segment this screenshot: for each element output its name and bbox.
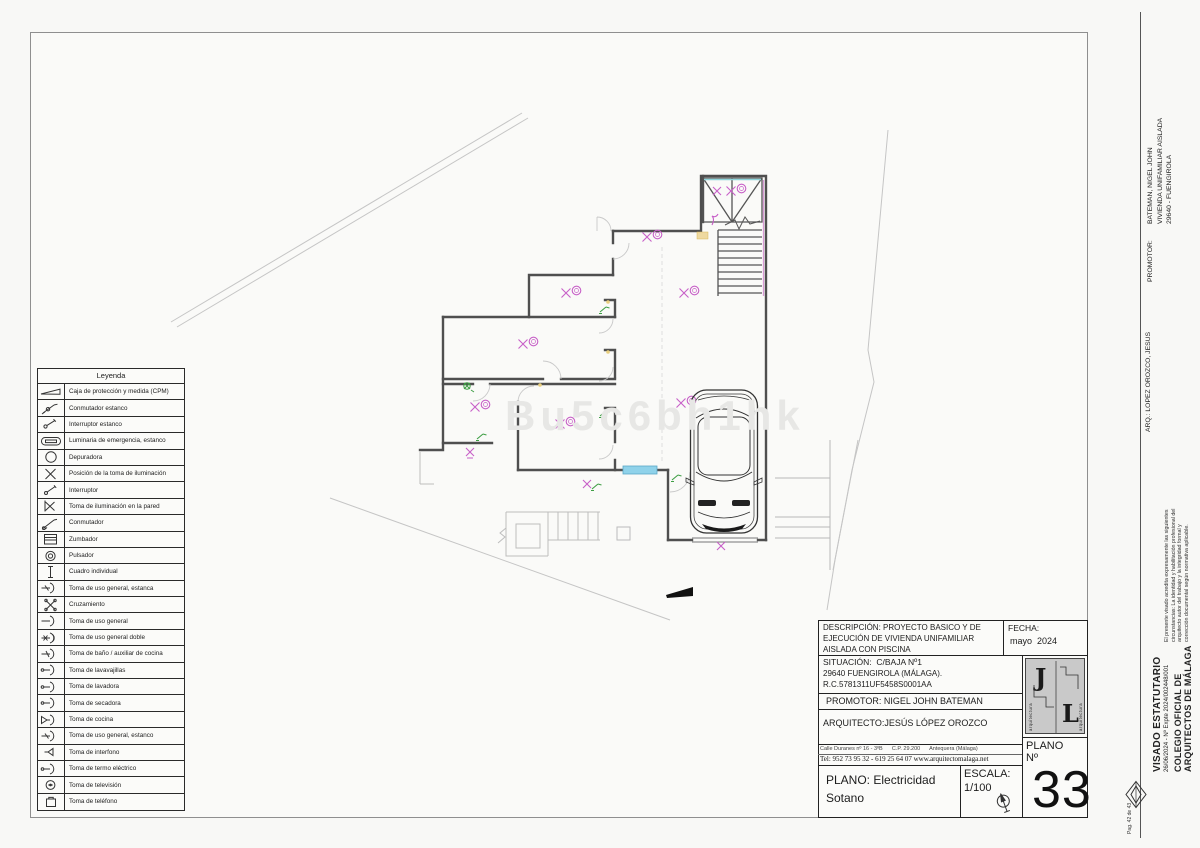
luminaria-emergencia-icon xyxy=(38,433,65,448)
toma-television-icon xyxy=(38,777,65,792)
window-marker xyxy=(623,466,657,474)
watermark: Bu5c6bh1hk xyxy=(505,392,805,440)
legend-row: Zumbador xyxy=(38,532,184,548)
sidebar-divider xyxy=(1140,12,1141,838)
legend-row: Toma de uso general xyxy=(38,613,184,629)
legend-row: Caja de protección y medida (CPM) xyxy=(38,384,184,400)
toma-lavavajillas-icon xyxy=(38,663,65,678)
floor-plan-walls xyxy=(420,176,766,540)
staircase xyxy=(703,178,762,296)
legend-row: Toma de interfono xyxy=(38,745,184,761)
plano-title: PLANO: Electricidad xyxy=(826,773,935,787)
legend-row: Toma de secadora xyxy=(38,695,184,711)
toma-bano-icon xyxy=(38,646,65,661)
legend-row: Toma de termo eléctrico xyxy=(38,761,184,777)
conmutador-estanco-icon xyxy=(38,400,65,415)
legend-item-label: Toma de interfono xyxy=(65,745,184,760)
toma-termo-icon xyxy=(38,761,65,776)
legend-row: Cruzamiento xyxy=(38,597,184,613)
utility-square xyxy=(617,527,630,540)
legend-item-label: Interruptor estanco xyxy=(65,417,184,432)
legend-row: Interruptor xyxy=(38,482,184,498)
sidebar-architect-line: ARQ.: LOPEZ OROZCO, JESUS xyxy=(1144,332,1154,432)
descripcion-line2: EJECUCIÓN DE VIVIENDA UNIFAMILIAR xyxy=(823,634,974,643)
toma-uso-general-estanco-icon xyxy=(38,581,65,596)
legend-item-label: Toma de cocina xyxy=(65,712,184,727)
legend-row: Toma de lavadora xyxy=(38,679,184,695)
plano-title2: Sotano xyxy=(826,791,864,805)
legend-row: Toma de lavavajillas xyxy=(38,663,184,679)
legend-row: Toma de teléfono xyxy=(38,794,184,810)
toma-iluminacion-icon xyxy=(38,466,65,481)
situacion-line2: 29640 FUENGIROLA (MÁLAGA). xyxy=(823,669,942,678)
visado-note: El presente visado acredita expresamente… xyxy=(1164,500,1190,642)
toma-interfono-icon xyxy=(38,745,65,760)
legend-item-label: Depuradora xyxy=(65,450,184,465)
cpm-symbol xyxy=(666,587,693,598)
toma-uso-general-estanco2-icon xyxy=(38,728,65,743)
legend-row: Interruptor estanco xyxy=(38,417,184,433)
toma-uso-general-icon xyxy=(38,613,65,628)
legend-item-label: Zumbador xyxy=(65,532,184,547)
interruptor-estanco-icon xyxy=(38,417,65,432)
legend-item-label: Toma de iluminación en la pared xyxy=(65,499,184,514)
legend-item-label: Toma de uso general xyxy=(65,613,184,628)
legend-item-label: Luminaria de emergencia, estanco xyxy=(65,433,184,448)
legend-row: Toma de uso general, estanco xyxy=(38,728,184,744)
door-arcs xyxy=(473,217,690,492)
toma-lavadora-icon xyxy=(38,679,65,694)
logo-step-lines xyxy=(1026,659,1086,735)
legend-item-label: Conmutador estanco xyxy=(65,400,184,415)
sidebar-promotor-label: PROMOTOR: xyxy=(1146,224,1156,282)
legend-row: Conmutador xyxy=(38,515,184,531)
toma-telefono-icon xyxy=(38,794,65,810)
sidebar-promotor-line3: 29640 - FUENGIROLA xyxy=(1165,155,1175,224)
legend-item-label: Toma de lavadora xyxy=(65,679,184,694)
address-line1: Calle Duranes nº 16 - 3ºB C.P. 29.200 An… xyxy=(820,746,978,752)
escala-label: ESCALA: xyxy=(964,768,1010,780)
escala-value: 1/100 xyxy=(964,782,992,794)
legend-item-label: Posición de la toma de iluminación xyxy=(65,466,184,481)
legend-item-label: Toma de teléfono xyxy=(65,794,184,810)
legend-title: Leyenda xyxy=(38,369,184,384)
arquitecto-line: ARQUITECTO:JESÚS LÓPEZ OROZCO xyxy=(823,718,987,728)
legend-row: Conmutador estanco xyxy=(38,400,184,416)
page-note: Pag. 42 de 43 xyxy=(1127,803,1133,834)
legend-row: Posición de la toma de iluminación xyxy=(38,466,184,482)
cpm-wedge-icon xyxy=(38,384,65,399)
cruzamiento-icon xyxy=(38,597,65,612)
toma-secadora-icon xyxy=(38,695,65,710)
legend-item-label: Toma de termo eléctrico xyxy=(65,761,184,776)
legend-item-label: Toma de televisión xyxy=(65,777,184,792)
legend-row: Luminaria de emergencia, estanco xyxy=(38,433,184,449)
legend-item-label: Cuadro individual xyxy=(65,564,184,579)
legend-item-label: Toma de uso general, estanco xyxy=(65,728,184,743)
address-line2: Tel: 952 73 95 32 - 619 25 64 07 www.arq… xyxy=(820,755,989,763)
situacion-line1: SITUACIÓN: C/BAJA Nº1 xyxy=(823,657,922,667)
sidebar-promotor-block: PROMOTOR: BATEMAN, NIGEL JOHN VIVIENDA U… xyxy=(1146,118,1175,282)
legend-item-label: Toma de uso general, estanca xyxy=(65,581,184,596)
zumbador-icon xyxy=(38,532,65,547)
north-arrow-icon xyxy=(993,790,1015,816)
legend: Leyenda Caja de protección y medida (CPM… xyxy=(37,368,185,811)
legend-item-label: Toma de uso general doble xyxy=(65,630,184,645)
legend-row: Toma de cocina xyxy=(38,712,184,728)
legend-row: Pulsador xyxy=(38,548,184,564)
legend-row: Toma de iluminación en la pared xyxy=(38,499,184,515)
legend-item-label: Pulsador xyxy=(65,548,184,563)
colegio-line1: COLEGIO OFICIAL DE xyxy=(1173,645,1183,772)
descripcion-line3: AISLADA CON PISCINA xyxy=(823,645,911,654)
visado-block: VISADO ESTATUTARIO 26/06/2024 - Nº Expte… xyxy=(1152,645,1193,772)
toma-cocina-icon xyxy=(38,712,65,727)
fecha-label: FECHA: xyxy=(1008,623,1039,633)
pulsador-icon xyxy=(38,548,65,563)
legend-item-label: Interruptor xyxy=(65,482,184,497)
legend-item-label: Caja de protección y medida (CPM) xyxy=(65,384,184,399)
site-boundary-lines xyxy=(171,113,888,620)
plano-no-label: PLANO xyxy=(1026,740,1063,752)
legend-item-label: Cruzamiento xyxy=(65,597,184,612)
cuadro-individual-icon xyxy=(38,564,65,579)
legend-row: Toma de uso general doble xyxy=(38,630,184,646)
legend-row: Toma de televisión xyxy=(38,777,184,793)
wall-light-symbols xyxy=(466,187,725,550)
visado-expte: 26/06/2024 - Nº Expte 2024/002448/001 xyxy=(1164,645,1170,772)
legend-row: Cuadro individual xyxy=(38,564,184,580)
sidebar-promotor-line1: BATEMAN, NIGEL JOHN xyxy=(1146,147,1156,224)
architect-logo: J L arquitectura arquitectura xyxy=(1025,658,1085,734)
toma-iluminacion-pared-icon xyxy=(38,499,65,514)
toma-uso-general-doble-icon xyxy=(38,630,65,645)
promotor-line: PROMOTOR: NIGEL JOHN BATEMAN xyxy=(826,696,983,706)
descripcion-line1: DESCRIPCIÓN: PROYECTO BASICO Y DE xyxy=(823,623,981,632)
depuradora-icon xyxy=(38,450,65,465)
garage-door xyxy=(692,538,758,542)
colegio-line2: ARQUITECTOS DE MÁLAGA xyxy=(1183,645,1193,772)
legend-row: Toma de uso general, estanca xyxy=(38,581,184,597)
fecha-value: mayo 2024 xyxy=(1010,636,1057,646)
situacion-line3: R.C.5781311UF5458S0001AA xyxy=(823,680,932,689)
legend-item-label: Toma de baño / auxiliar de cocina xyxy=(65,646,184,661)
legend-item-label: Toma de lavavajillas xyxy=(65,663,184,678)
plano-number: 33 xyxy=(1032,760,1092,820)
driveway-ramp xyxy=(775,440,830,570)
legend-row: Depuradora xyxy=(38,450,184,466)
visado-title: VISADO ESTATUTARIO xyxy=(1152,645,1163,772)
legend-item-label: Conmutador xyxy=(65,515,184,530)
conmutador-icon xyxy=(38,515,65,530)
interruptor-icon xyxy=(38,482,65,497)
legend-item-label: Toma de secadora xyxy=(65,695,184,710)
legend-row: Toma de baño / auxiliar de cocina xyxy=(38,646,184,662)
sidebar-promotor-line2: VIVIENDA UNIFAMILIAR AISLADA xyxy=(1156,118,1166,224)
